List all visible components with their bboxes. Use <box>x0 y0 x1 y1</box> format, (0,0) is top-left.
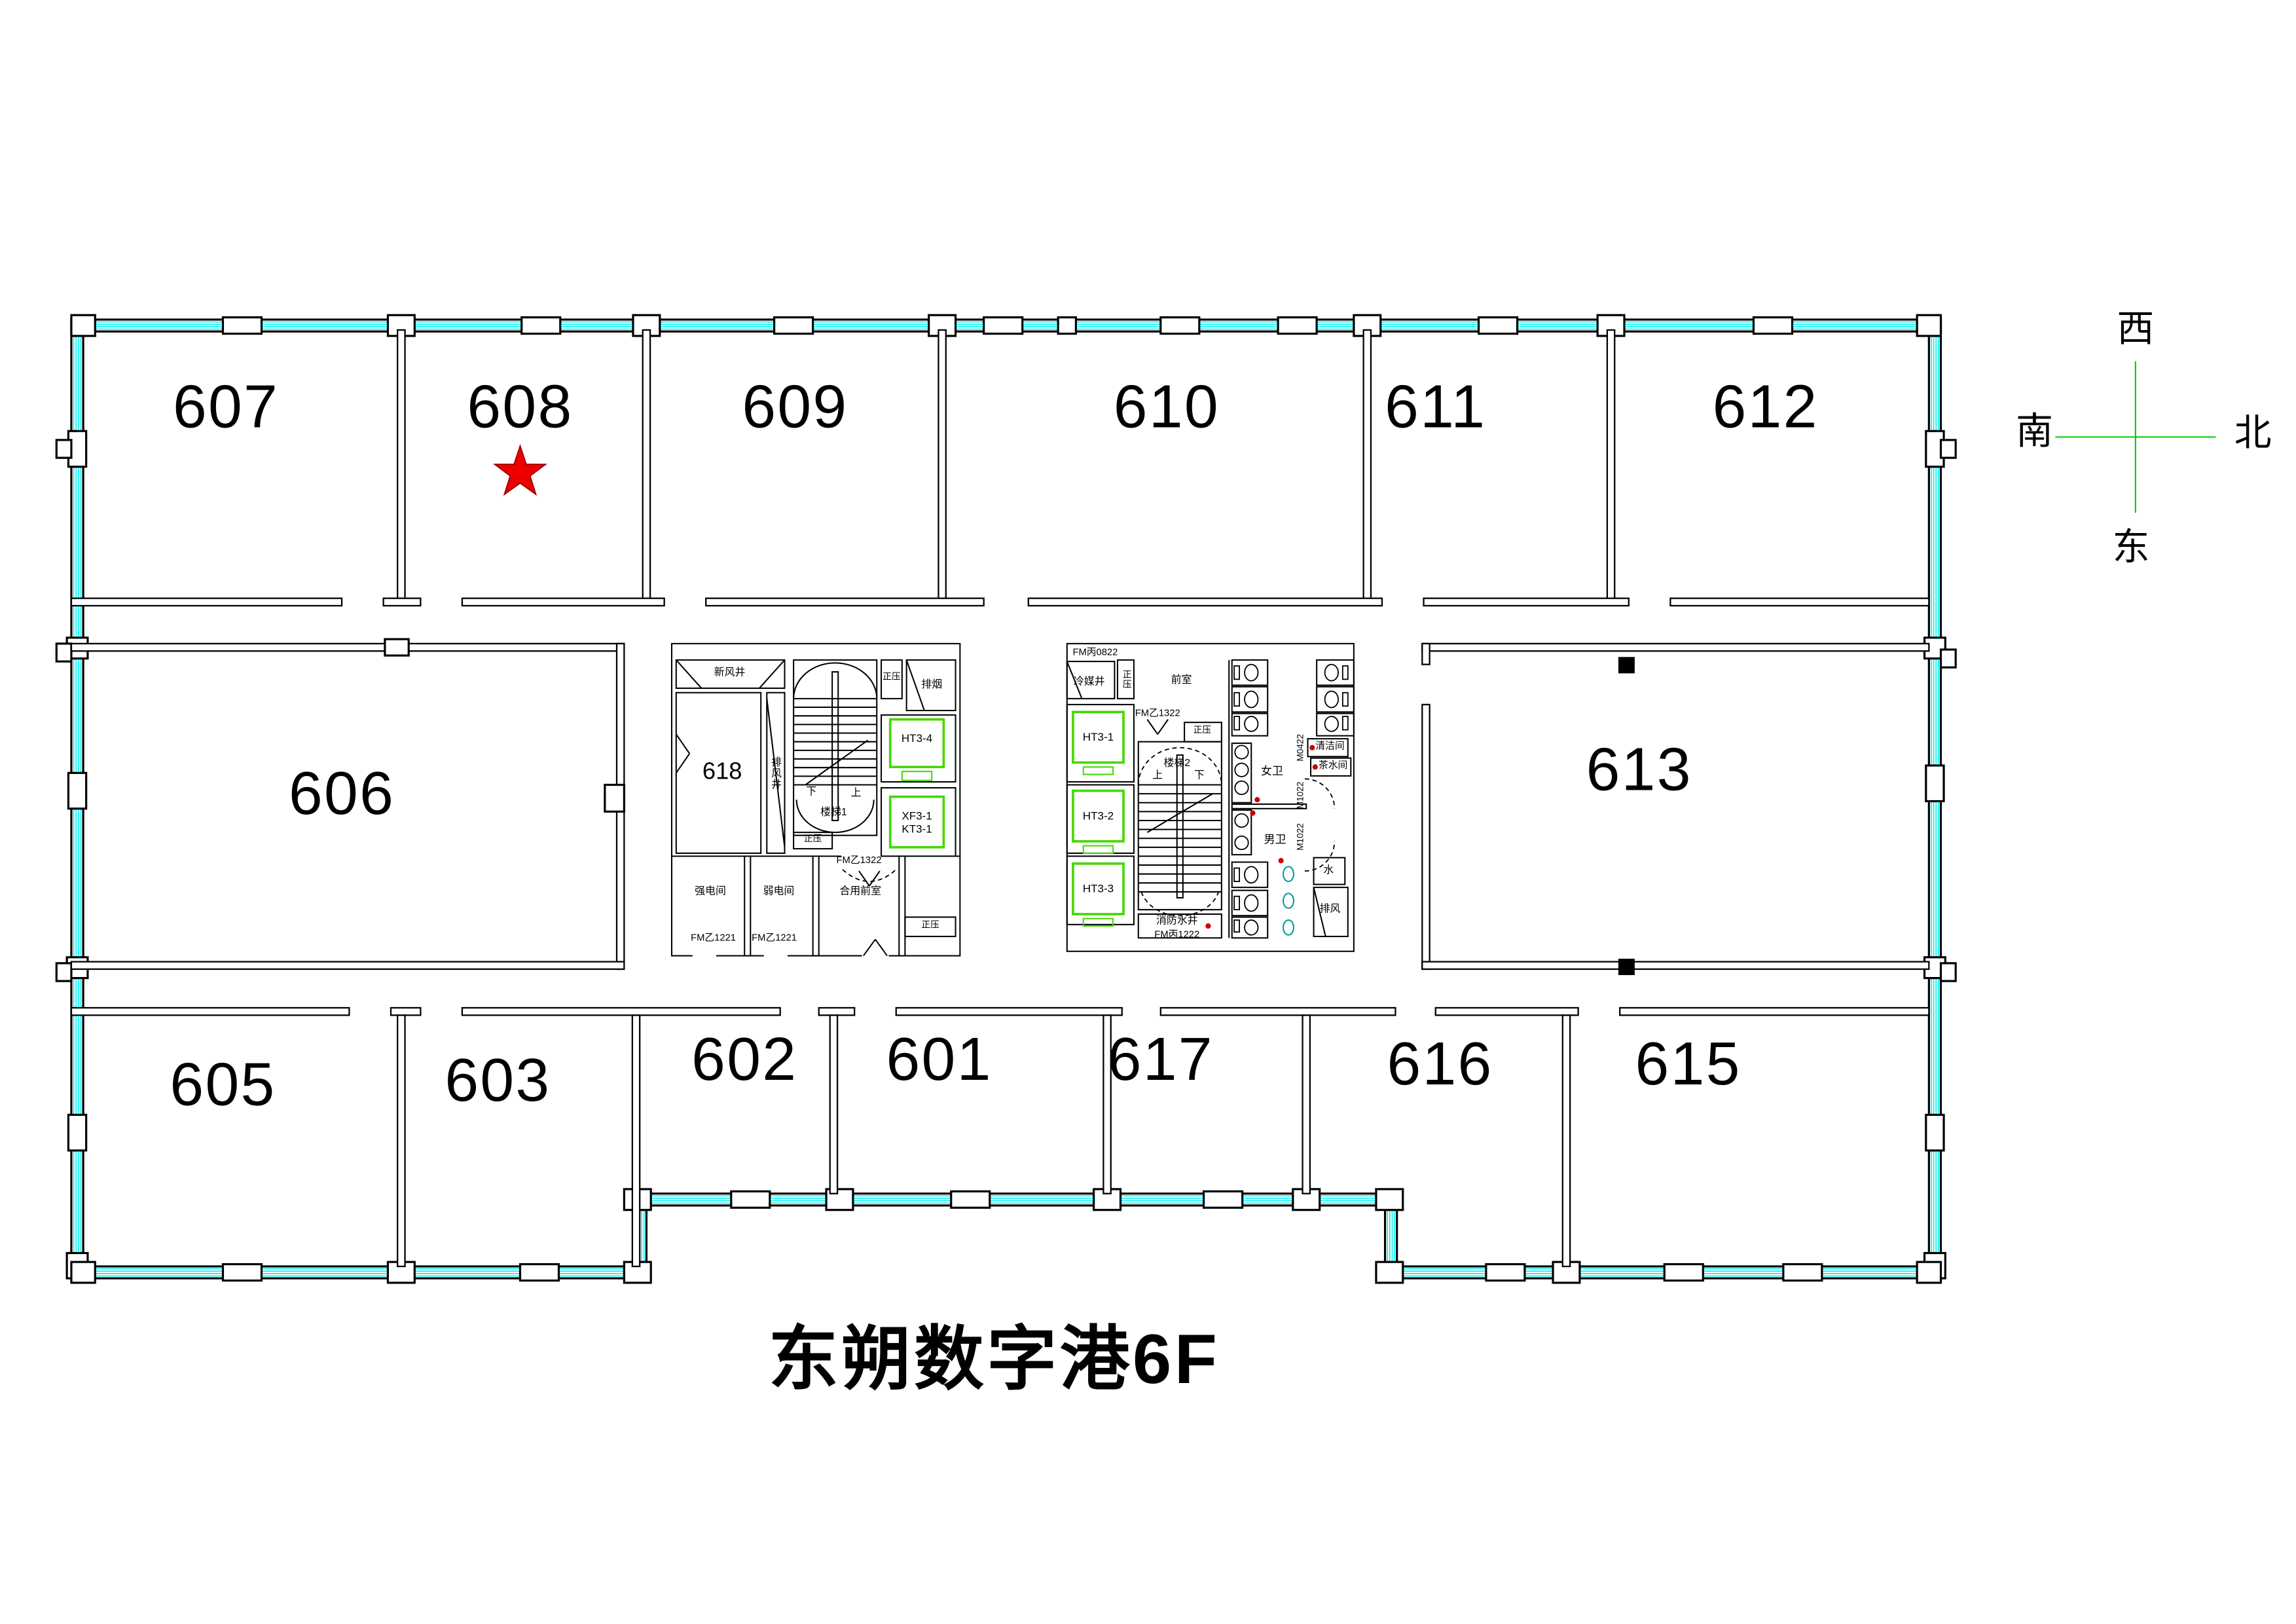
strong-electric-room-label: 强电间 <box>695 887 726 897</box>
room-label-613: 613 <box>1586 739 1692 800</box>
room-label-611: 611 <box>1385 377 1486 437</box>
room-label-616: 616 <box>1387 1034 1493 1095</box>
star-marker <box>495 446 546 494</box>
floor-plan-page: 607 608 609 610 611 612 606 613 618 605 … <box>0 0 2296 1624</box>
elevator-kt3-1-label: KT3-1 <box>902 823 932 834</box>
weak-electric-room-label: 弱电间 <box>763 887 795 897</box>
room-label-617: 617 <box>1108 1029 1214 1090</box>
compass-north-label: 北 <box>2234 415 2272 452</box>
stair2-label: 楼梯2 <box>1163 759 1190 769</box>
room-label-605: 605 <box>170 1054 276 1115</box>
womens-toilet-fixtures <box>1232 660 1354 855</box>
fire-door-1322-label: FM乙1322 <box>837 857 882 867</box>
urinals <box>1283 866 1294 934</box>
smoke-exhaust-label: 排烟 <box>921 680 942 690</box>
room-label-601: 601 <box>886 1029 993 1090</box>
stair1-label: 楼梯1 <box>820 808 847 819</box>
shared-vestibule-label: 合用前室 <box>839 887 881 897</box>
positive-pressure-label: 正压 <box>804 836 822 845</box>
fire-door-0822-label: FM丙0822 <box>1072 649 1118 659</box>
stair2-down-label: 下 <box>1194 771 1205 781</box>
positive-pressure-label: 正压 <box>921 921 939 931</box>
refrigerant-shaft-label: 冷媒井 <box>1074 677 1105 688</box>
fire-door-1222-label: FM丙1222 <box>1154 932 1199 942</box>
door-m1022-label: M1022 <box>1298 782 1307 809</box>
elevator-xf3-1-label: XF3-1 <box>902 811 932 822</box>
positive-pressure-label: 正压 <box>883 673 900 682</box>
positive-pressure-label: 正压 <box>1194 727 1211 736</box>
vestibule-label: 前室 <box>1171 676 1192 686</box>
elevator-ht3-2-label: HT3-2 <box>1083 811 1114 822</box>
room-label-609: 609 <box>742 377 848 437</box>
room-label-612: 612 <box>1713 377 1819 437</box>
compass-east-label: 东 <box>2113 530 2150 567</box>
room-label-610: 610 <box>1114 377 1220 437</box>
exhaust-shaft-label: 排风井 <box>771 756 781 790</box>
star-icon <box>495 446 546 494</box>
room-label-607: 607 <box>173 377 279 437</box>
door-m0422-label: M0422 <box>1298 734 1307 762</box>
elevator-ht3-4-label: HT3-4 <box>902 733 932 745</box>
fire-door-1221-label: FM乙1221 <box>752 934 797 944</box>
room-618-door <box>676 734 689 773</box>
room-label-602: 602 <box>691 1029 797 1090</box>
core-left <box>672 644 960 959</box>
elevator-ht3-1-label: HT3-1 <box>1083 731 1114 743</box>
page-title: 东朔数字港6F <box>769 1323 1220 1393</box>
mens-toilet-label: 男卫 <box>1264 834 1286 845</box>
compass-cross <box>2055 361 2215 513</box>
stair1-down-label: 下 <box>806 787 816 798</box>
mens-toilet-fixtures <box>1232 862 1267 938</box>
stair2-up-label: 上 <box>1152 771 1163 781</box>
cleaning-room-label: 清洁间 <box>1315 743 1344 752</box>
elevator-ht3-3-label: HT3-3 <box>1083 883 1114 895</box>
fm-door-1322-right <box>1147 720 1168 735</box>
room-label-618: 618 <box>702 761 742 784</box>
fire-door-1221-label: FM乙1221 <box>691 934 736 944</box>
compass-west-label: 西 <box>2117 312 2154 349</box>
fire-door-1322-label: FM乙1322 <box>1135 710 1180 720</box>
room-label-606: 606 <box>289 764 395 824</box>
water-room-label: 水 <box>1323 866 1334 876</box>
room-label-603: 603 <box>445 1050 551 1111</box>
fm-door-1322 <box>859 871 880 886</box>
pantry-label: 茶水间 <box>1319 762 1347 772</box>
room-label-608: 608 <box>467 377 573 437</box>
womens-toilet-label: 女卫 <box>1261 766 1283 777</box>
positive-pressure-label: 正压 <box>1121 670 1130 690</box>
fire-water-shaft-label: 消防水井 <box>1156 916 1198 927</box>
core-right <box>1067 644 1354 951</box>
compass-south-label: 南 <box>2016 414 2053 451</box>
door-m1022-label: M1022 <box>1298 823 1307 851</box>
stair1-up-label: 上 <box>851 788 862 799</box>
exhaust-room-label: 排风 <box>1320 904 1341 915</box>
fresh-air-shaft-label: 新风井 <box>714 668 746 678</box>
room-label-615: 615 <box>1635 1034 1741 1095</box>
